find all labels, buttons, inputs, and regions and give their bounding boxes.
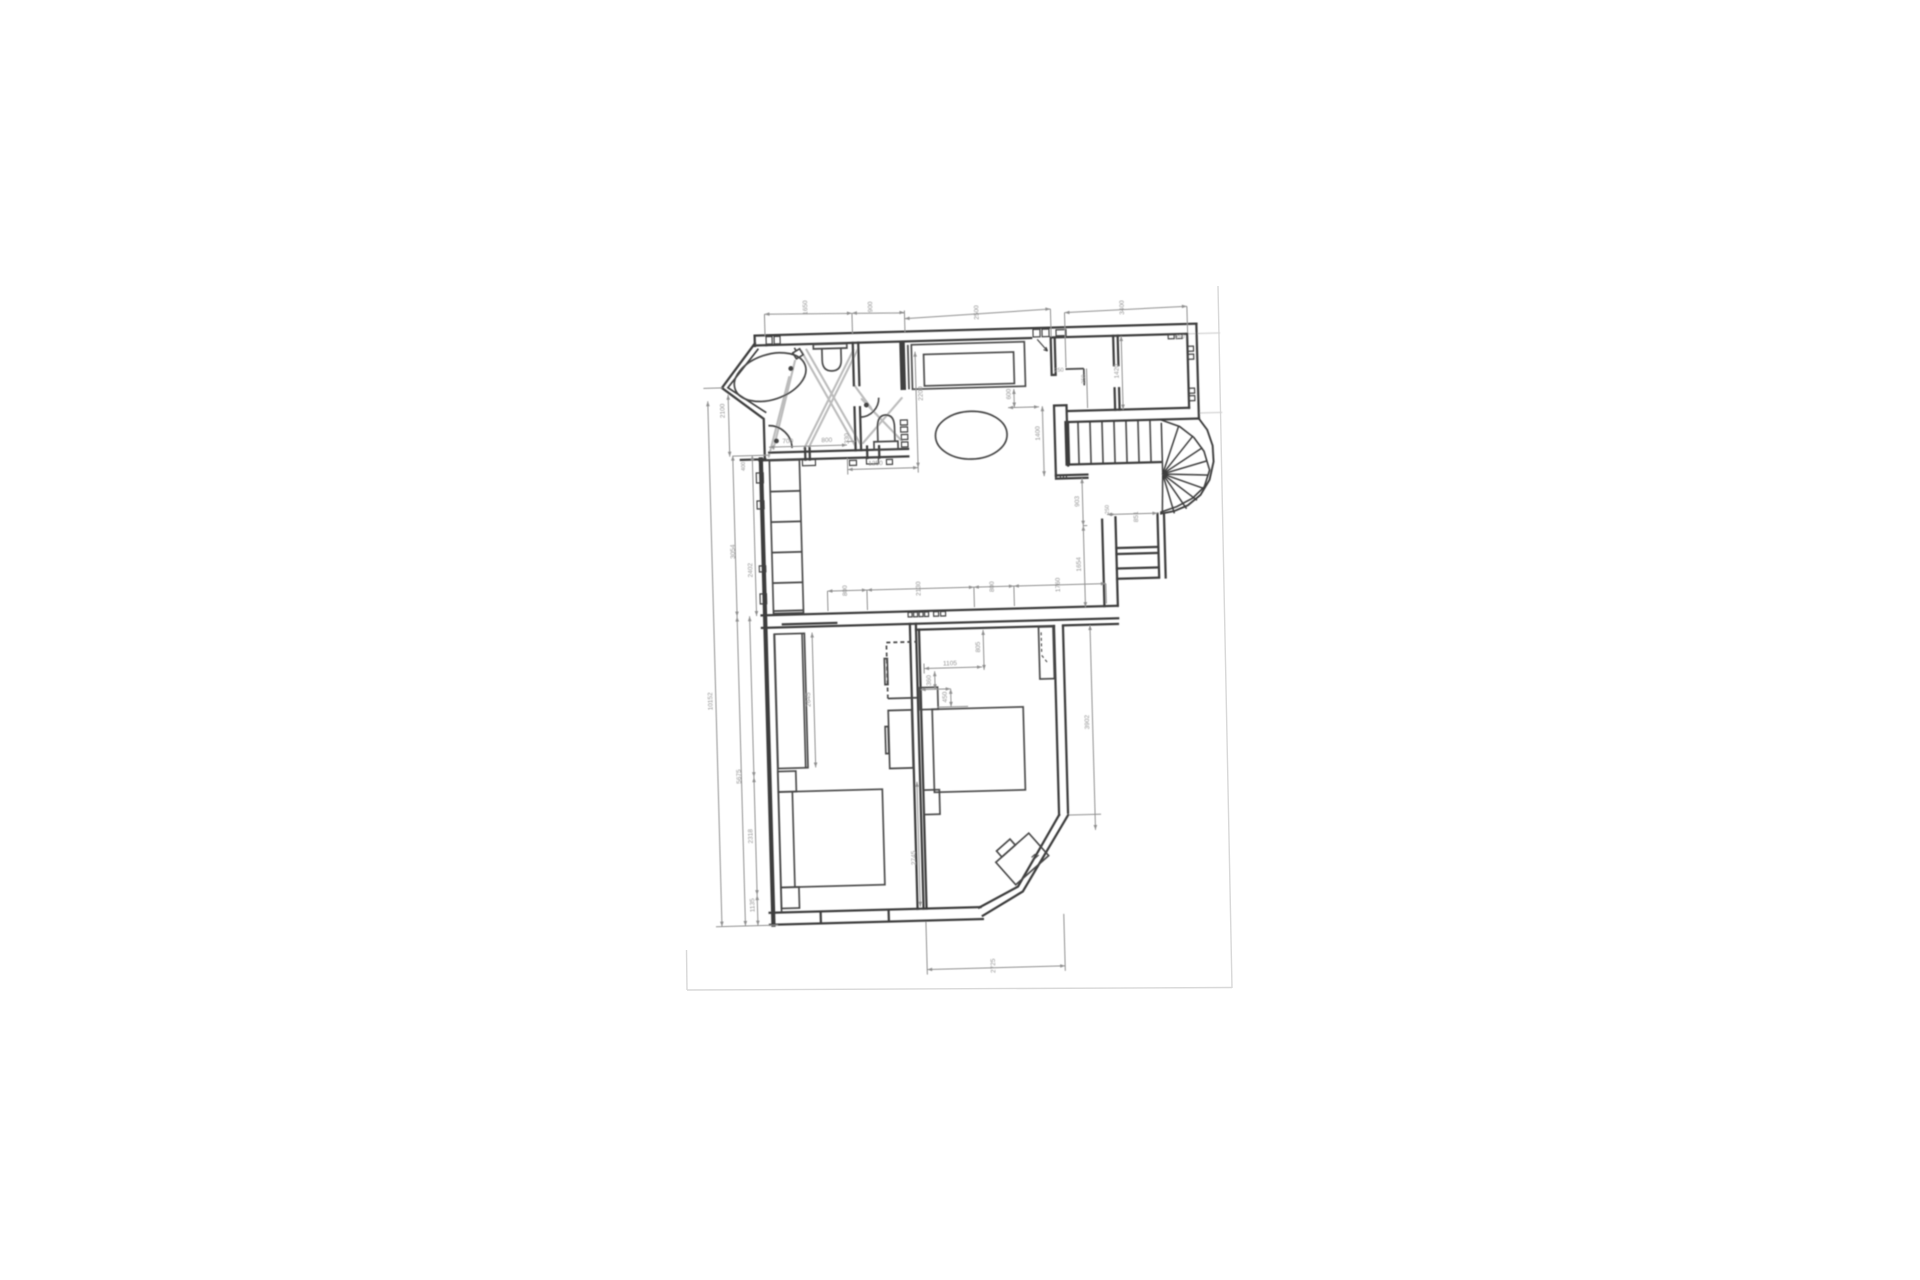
svg-text:250: 250 [1081, 374, 1087, 383]
svg-text:851: 851 [1133, 511, 1140, 522]
svg-text:903: 903 [1074, 495, 1081, 506]
svg-text:400: 400 [741, 462, 747, 471]
svg-text:2745: 2745 [910, 850, 917, 865]
svg-text:1135: 1135 [749, 898, 756, 913]
svg-text:805: 805 [975, 641, 982, 652]
svg-text:2725: 2725 [990, 958, 997, 973]
svg-text:900: 900 [867, 301, 874, 312]
svg-text:2318: 2318 [747, 829, 754, 844]
svg-text:10152: 10152 [707, 692, 714, 711]
svg-text:1760: 1760 [1055, 577, 1062, 592]
svg-text:800: 800 [989, 581, 996, 592]
svg-text:1105: 1105 [943, 660, 958, 667]
svg-text:2645: 2645 [805, 692, 812, 707]
svg-text:250: 250 [1054, 368, 1063, 374]
svg-text:330: 330 [844, 433, 851, 444]
svg-text:3054: 3054 [730, 544, 737, 559]
svg-text:3902: 3902 [1084, 714, 1091, 729]
svg-text:800: 800 [821, 437, 832, 444]
svg-text:1400: 1400 [1035, 426, 1042, 441]
svg-text:2402: 2402 [747, 562, 754, 577]
svg-text:5675: 5675 [736, 769, 743, 784]
svg-text:2100: 2100 [719, 403, 726, 418]
svg-text:1420: 1420 [1113, 364, 1120, 379]
svg-text:3400: 3400 [1119, 300, 1126, 315]
svg-text:800: 800 [842, 585, 849, 596]
svg-text:600: 600 [1006, 388, 1013, 399]
svg-text:360: 360 [926, 675, 933, 686]
svg-text:2130: 2130 [915, 581, 922, 596]
svg-text:1250: 1250 [868, 460, 883, 467]
svg-text:250: 250 [1176, 334, 1185, 340]
svg-text:2200: 2200 [917, 386, 924, 401]
svg-text:250: 250 [1105, 505, 1111, 514]
svg-text:1650: 1650 [802, 300, 809, 315]
svg-text:2500: 2500 [973, 305, 980, 320]
svg-text:700: 700 [782, 438, 793, 445]
svg-text:450: 450 [942, 691, 949, 702]
svg-text:1654: 1654 [1076, 557, 1083, 572]
